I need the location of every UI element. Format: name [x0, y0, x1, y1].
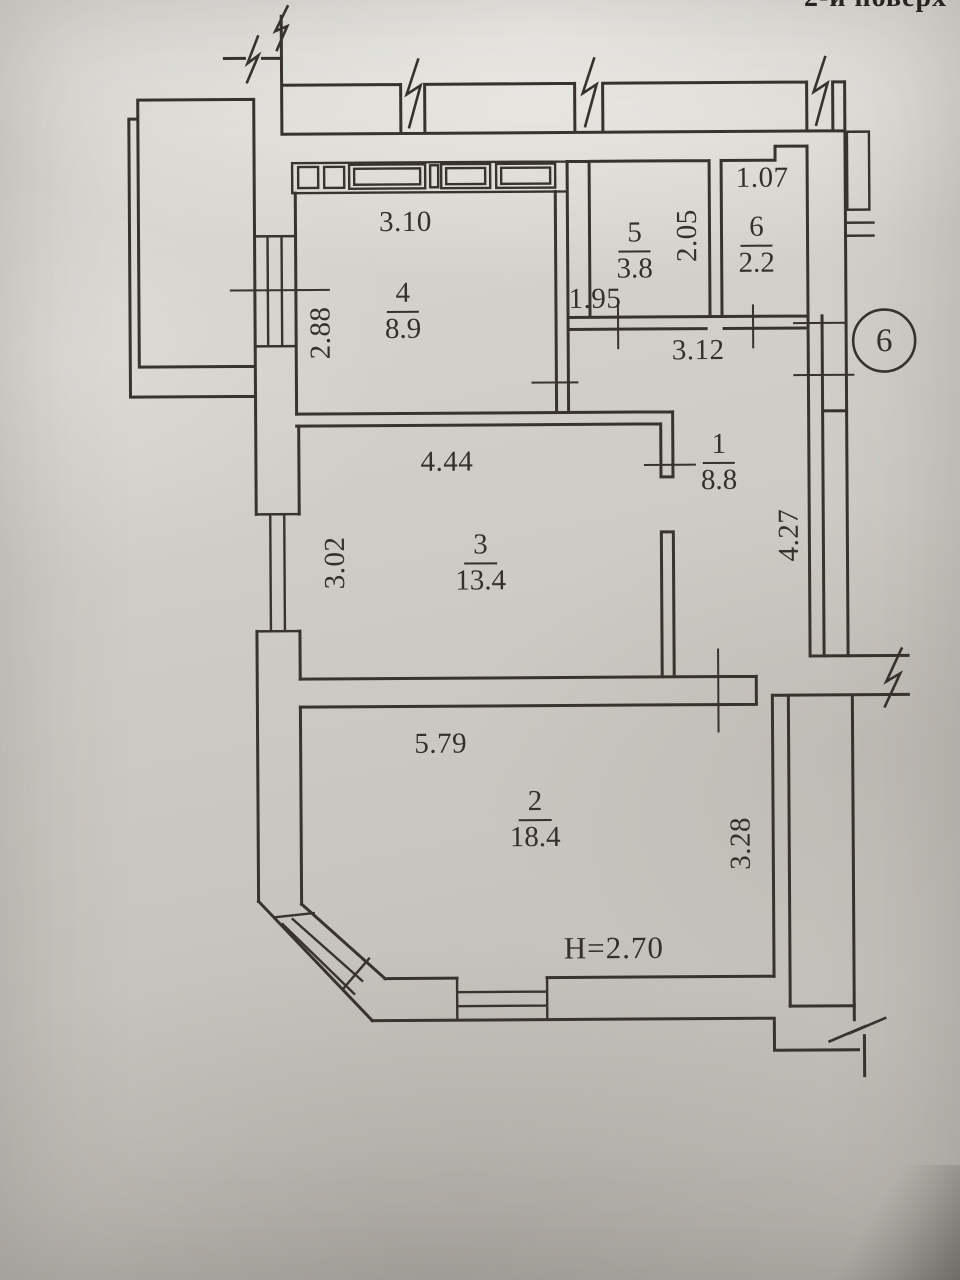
room-1-label: 1 8.8 — [701, 430, 738, 495]
room-4-number: 4 — [387, 279, 420, 313]
axis-marker-number: 6 — [876, 323, 893, 360]
room2-depth-dimension: 3.28 — [725, 817, 758, 870]
window-band-room4-panes — [298, 164, 555, 190]
room-4-label: 4 8.9 — [385, 279, 422, 344]
riser-shaft-top-right — [845, 132, 874, 236]
room5-depth-dimension: 2.05 — [671, 209, 704, 262]
room-2-area: 18.4 — [510, 821, 561, 853]
room-1-area: 8.8 — [701, 463, 737, 495]
room-3-area: 13.4 — [455, 564, 506, 596]
hallway-width-dimension: 3.12 — [672, 334, 725, 367]
room-6-label: 6 2.2 — [738, 213, 775, 278]
floor-plan-drawing — [0, 0, 960, 1280]
room-3-number: 3 — [464, 530, 497, 564]
room2-width-dimension: 5.79 — [414, 728, 467, 761]
room-3-label: 3 13.4 — [455, 530, 506, 595]
room3-width-dimension: 4.44 — [420, 446, 473, 479]
floor-caption: 2-й поверх — [804, 0, 947, 14]
room6-width-dimension: 1.07 — [736, 162, 789, 195]
room-1-number: 1 — [702, 430, 735, 464]
floor-plan: 3.10 2.88 1.95 2.05 1.07 3.12 4.44 3.02 … — [0, 0, 960, 1280]
room-5-label: 5 3.8 — [616, 218, 653, 283]
room-5-number: 5 — [618, 218, 651, 252]
room4-width-dimension: 3.10 — [379, 206, 432, 239]
hallway-depth-dimension: 4.27 — [773, 509, 806, 562]
ceiling-height-note: H=2.70 — [564, 930, 664, 967]
room-2-label: 2 18.4 — [510, 787, 561, 852]
room-4-area: 8.9 — [385, 312, 421, 344]
room-6-area: 2.2 — [738, 246, 774, 278]
room3-window-dimension: 3.02 — [319, 536, 352, 589]
room-2-number: 2 — [519, 787, 552, 821]
floor-plan-photo: 3.10 2.88 1.95 2.05 1.07 3.12 4.44 3.02 … — [0, 0, 960, 1280]
room-6-number: 6 — [740, 213, 773, 247]
window-room3-left — [256, 514, 300, 631]
room5-door-dimension: 1.95 — [568, 283, 621, 316]
room-5-area: 3.8 — [617, 252, 653, 284]
window-room2-bottom — [457, 978, 547, 1021]
left-window-dimension: 2.88 — [304, 306, 337, 359]
